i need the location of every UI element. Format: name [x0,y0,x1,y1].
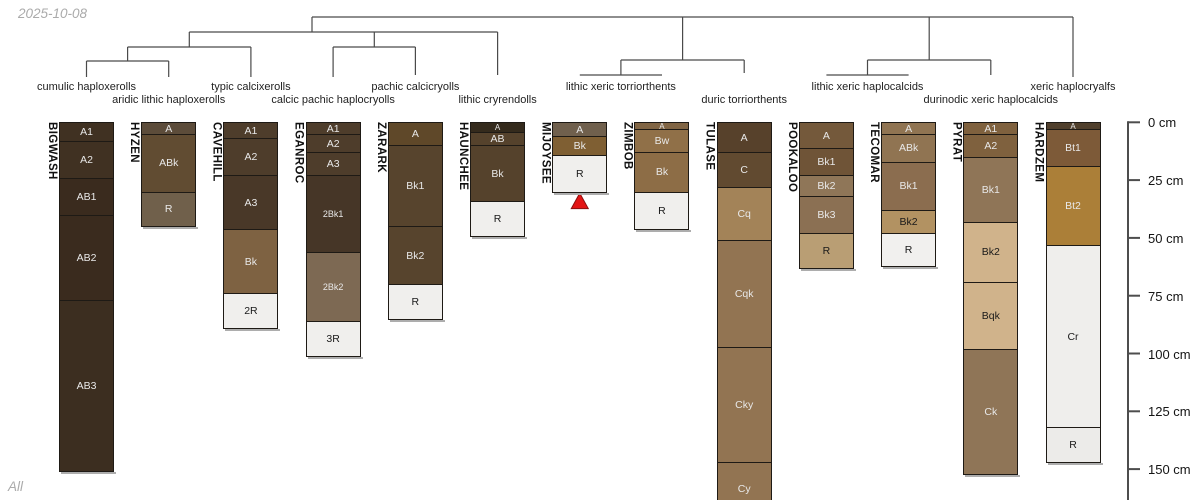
soil-profile-dendrogram-figure: 2025-10-08 0 cm25 cm50 cm75 cm100 cm125 … [0,0,1200,500]
horizon-rect: Bk2 [881,210,936,234]
horizon-rect: Bk3 [799,196,854,234]
horizon-label: 2R [244,305,257,317]
horizon-rect: Bk1 [881,162,936,212]
horizon-label: A1 [80,126,93,138]
profile-name-label: POOKALOO [784,122,798,192]
profile-base-shadow [308,357,363,359]
horizon-label: A [905,123,912,135]
horizon-rect: A2 [223,138,278,176]
horizon-label: A2 [80,154,93,166]
red-triangle-marker [571,193,588,209]
horizon-rect: Bk1 [799,148,854,177]
taxon-label: lithic xeric haplocalcids [812,81,924,93]
horizon-label: 2Bk2 [323,282,344,292]
horizon-label: Bk1 [817,156,835,168]
horizon-label: Bk2 [900,216,918,228]
horizon-rect: Bk1 [963,157,1018,223]
horizon-rect: Bqk [963,282,1018,350]
taxon-label: cumulic haploxerolls [37,81,136,93]
horizon-label: R [658,205,666,217]
profile-name-label: EGANROC [291,122,305,184]
horizon-rect: A2 [306,134,361,153]
horizon-rect: R [634,192,689,230]
profile-base-shadow [225,329,280,331]
horizon-label: Bk2 [406,250,424,262]
horizon-label: Bk [656,166,668,178]
horizon-label: 3R [326,333,339,345]
horizon-label: AB3 [77,380,97,392]
depth-tick-label: 25 cm [1148,173,1183,188]
taxon-label: pachic calcicryolls [371,81,459,93]
horizon-label: Bt2 [1065,200,1081,212]
profile-name-label: TULASE [702,122,716,170]
horizon-label: Cr [1067,331,1078,343]
horizon-label: A [412,128,419,140]
horizon-rect: 2R [223,293,278,329]
profile-base-shadow [61,472,116,474]
horizon-label: Ck [984,406,997,418]
horizon-rect: R [799,233,854,269]
horizon-label: R [576,168,584,180]
horizon-label: Bk2 [982,246,1000,258]
horizon-rect: A2 [59,141,114,179]
horizon-rect: Bw [634,129,689,153]
horizon-rect: R [881,233,936,266]
horizon-label: A [741,132,748,144]
depth-tick-label: 50 cm [1148,231,1183,246]
horizon-label: R [823,245,831,257]
horizon-label: A1 [244,125,257,137]
horizon-label: R [1069,439,1077,451]
depth-tick-label: 125 cm [1148,404,1191,419]
horizon-rect: 2Bk1 [306,175,361,252]
horizon-label: ABk [899,142,918,154]
horizon-label: ABk [159,157,178,169]
horizon-rect: AB2 [59,215,114,302]
horizon-rect: R [388,284,443,320]
depth-tick-label: 100 cm [1148,347,1191,362]
horizon-rect: Cky [717,347,772,464]
depth-tick-label: 75 cm [1148,289,1183,304]
profile-name-label: CAVEHILL [208,122,222,182]
horizon-rect: Bt2 [1046,166,1101,246]
horizon-label: Cq [737,208,750,220]
horizon-rect: Bk [552,136,607,155]
horizon-rect: C [717,152,772,188]
taxon-label: lithic cryrendolls [458,94,536,106]
horizon-rect: ABk [881,134,936,163]
taxon-label: duric torriorthents [701,94,787,106]
horizon-rect: A3 [306,152,361,176]
horizon-label: Bqk [982,310,1000,322]
horizon-rect: AB1 [59,178,114,216]
horizon-rect: Cy [717,462,772,500]
horizon-label: AB1 [77,191,97,203]
horizon-rect: R [552,155,607,193]
horizon-rect: R [1046,427,1101,463]
horizon-label: Bk [245,256,257,268]
horizon-label: A [823,130,830,142]
profile-base-shadow [554,193,609,195]
horizon-rect: A [799,122,854,148]
horizon-rect: A [717,122,772,153]
horizon-label: A1 [984,123,997,135]
horizon-rect: Bt1 [1046,129,1101,167]
horizon-label: A1 [327,123,340,135]
horizon-label: A3 [327,158,340,170]
horizon-label: A [576,124,583,136]
horizon-label: C [740,164,748,176]
horizon-rect: A [388,122,443,146]
horizon-rect: R [141,192,196,228]
horizon-label: R [494,213,502,225]
horizon-label: A3 [244,197,257,209]
profile-name-label: ZARARK [373,122,387,173]
horizon-rect: Bk1 [388,145,443,227]
horizon-label: R [412,296,420,308]
horizon-label: A2 [327,138,340,150]
taxon-label: typic calcixerolls [211,81,290,93]
profile-base-shadow [883,267,938,269]
horizon-rect: Bk [223,229,278,295]
profile-base-shadow [636,230,691,232]
profile-base-shadow [965,475,1020,477]
profile-name-label: HYZEN [126,122,140,163]
horizon-label: Bk2 [817,180,835,192]
horizon-rect: AB [470,132,525,147]
horizon-label: AB2 [77,252,97,264]
profile-name-label: HARDZEM [1031,122,1045,182]
horizon-rect: A1 [223,122,278,139]
horizon-label: Bt1 [1065,142,1081,154]
profile-name-label: TECOMAR [866,122,880,183]
horizon-label: R [165,203,173,215]
profile-name-label: HAUNCHEE [455,122,469,190]
horizon-rect: Bk [634,152,689,192]
horizon-label: Bk [574,140,586,152]
horizon-label: Bk1 [982,184,1000,196]
horizon-rect: Ck [963,349,1018,475]
horizon-label: Bk3 [817,209,835,221]
depth-tick-label: 0 cm [1148,115,1176,130]
horizon-label: AB [491,133,505,145]
horizon-label: 2Bk1 [323,209,344,219]
profile-name-label: PYRAT [948,122,962,162]
horizon-label: Cqk [735,288,754,300]
horizon-rect: ABk [141,134,196,193]
horizon-rect: Bk2 [963,222,1018,283]
horizon-rect: R [470,201,525,237]
horizon-label: R [905,244,913,256]
horizon-label: Cky [735,399,753,411]
horizon-rect: 3R [306,321,361,357]
horizon-rect: A2 [963,134,1018,158]
horizon-label: Bw [655,135,670,147]
horizon-label: Bk1 [406,180,424,192]
taxon-label: calcic pachic haplocryolls [271,94,395,106]
horizon-rect: Bk [470,145,525,201]
horizon-label: Bk [491,168,503,180]
profile-base-shadow [472,237,527,239]
horizon-rect: Cq [717,187,772,241]
horizon-label: A2 [984,140,997,152]
horizon-label: A2 [244,151,257,163]
horizon-rect: A [552,122,607,137]
profile-base-shadow [801,269,856,271]
depth-tick-label: 150 cm [1148,462,1191,477]
profile-name-label: ZIMBOB [619,122,633,170]
dendrogram-and-axis-svg [0,0,1200,500]
horizon-label: Cy [738,483,751,495]
taxon-label: aridic lithic haploxerolls [112,94,225,106]
profile-name-label: BIGWASH [44,122,58,180]
horizon-rect: AB3 [59,300,114,472]
horizon-rect: Cqk [717,240,772,347]
horizon-label: A [165,123,172,135]
horizon-rect: Cr [1046,245,1101,429]
profile-base-shadow [1048,463,1103,465]
profile-name-label: MIJOYSEE [537,122,551,184]
horizon-rect: A3 [223,175,278,229]
subset-annotation: All [8,479,23,494]
taxon-label: xeric haplocryalfs [1031,81,1116,93]
horizon-rect: 2Bk2 [306,252,361,322]
horizon-rect: A1 [59,122,114,141]
taxon-label: lithic xeric torriorthents [566,81,676,93]
horizon-rect: Bk2 [799,175,854,197]
horizon-label: Bk1 [900,180,918,192]
taxon-label: durinodic xeric haplocalcids [924,94,1059,106]
horizon-rect: Bk2 [388,226,443,285]
profile-base-shadow [143,227,198,229]
profile-base-shadow [390,320,445,322]
